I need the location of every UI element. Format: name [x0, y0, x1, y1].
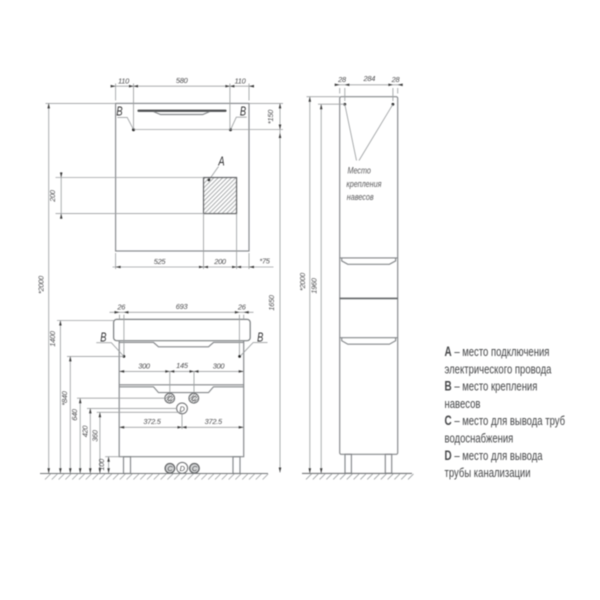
svg-text:*75: *75 — [259, 256, 270, 265]
svg-text:B: B — [240, 105, 247, 119]
svg-text:навесов: навесов — [347, 192, 374, 202]
svg-text:1400: 1400 — [48, 330, 57, 347]
svg-text:*2000: *2000 — [37, 275, 46, 294]
svg-text:водоснабжения: водоснабжения — [445, 432, 514, 446]
svg-text:372.5: 372.5 — [143, 417, 161, 426]
svg-text:электрического провода: электрического провода — [445, 363, 552, 377]
svg-text:525: 525 — [154, 257, 167, 266]
svg-text:26: 26 — [237, 303, 247, 312]
svg-text:28: 28 — [391, 75, 401, 84]
svg-text:C: C — [191, 394, 197, 403]
svg-text:300: 300 — [138, 362, 151, 371]
svg-text:693: 693 — [176, 302, 189, 311]
svg-text:372.5: 372.5 — [205, 417, 223, 426]
svg-text:100: 100 — [97, 458, 106, 471]
svg-text:B: B — [116, 105, 123, 119]
svg-text:110: 110 — [234, 77, 246, 86]
svg-text:C – место для вывода труб: C – место для вывода труб — [445, 413, 566, 429]
svg-text:284: 284 — [363, 74, 376, 83]
svg-text:1960: 1960 — [310, 277, 319, 294]
svg-text:трубы канализации: трубы канализации — [445, 467, 531, 481]
svg-text:крепления: крепления — [346, 179, 382, 189]
svg-text:D – место для вывода: D – место для вывода — [445, 447, 544, 463]
svg-text:200: 200 — [48, 189, 57, 203]
svg-text:*840: *840 — [60, 390, 69, 405]
svg-text:360: 360 — [90, 429, 99, 442]
svg-text:Место: Место — [348, 166, 372, 176]
svg-text:420: 420 — [81, 425, 90, 438]
svg-text:*150: *150 — [266, 109, 275, 124]
svg-text:110: 110 — [118, 77, 130, 86]
svg-text:*2000: *2000 — [298, 272, 307, 291]
svg-text:28: 28 — [337, 75, 347, 84]
svg-text:300: 300 — [213, 361, 226, 370]
svg-text:145: 145 — [176, 361, 189, 370]
svg-text:A – место подключения: A – место подключения — [445, 343, 550, 359]
svg-text:B – место крепления: B – место крепления — [445, 378, 538, 394]
svg-text:640: 640 — [70, 408, 79, 421]
svg-text:26: 26 — [116, 303, 126, 312]
svg-text:1650: 1650 — [267, 294, 276, 311]
svg-text:навесов: навесов — [445, 398, 481, 412]
svg-text:580: 580 — [176, 76, 189, 85]
svg-text:200: 200 — [213, 257, 227, 266]
